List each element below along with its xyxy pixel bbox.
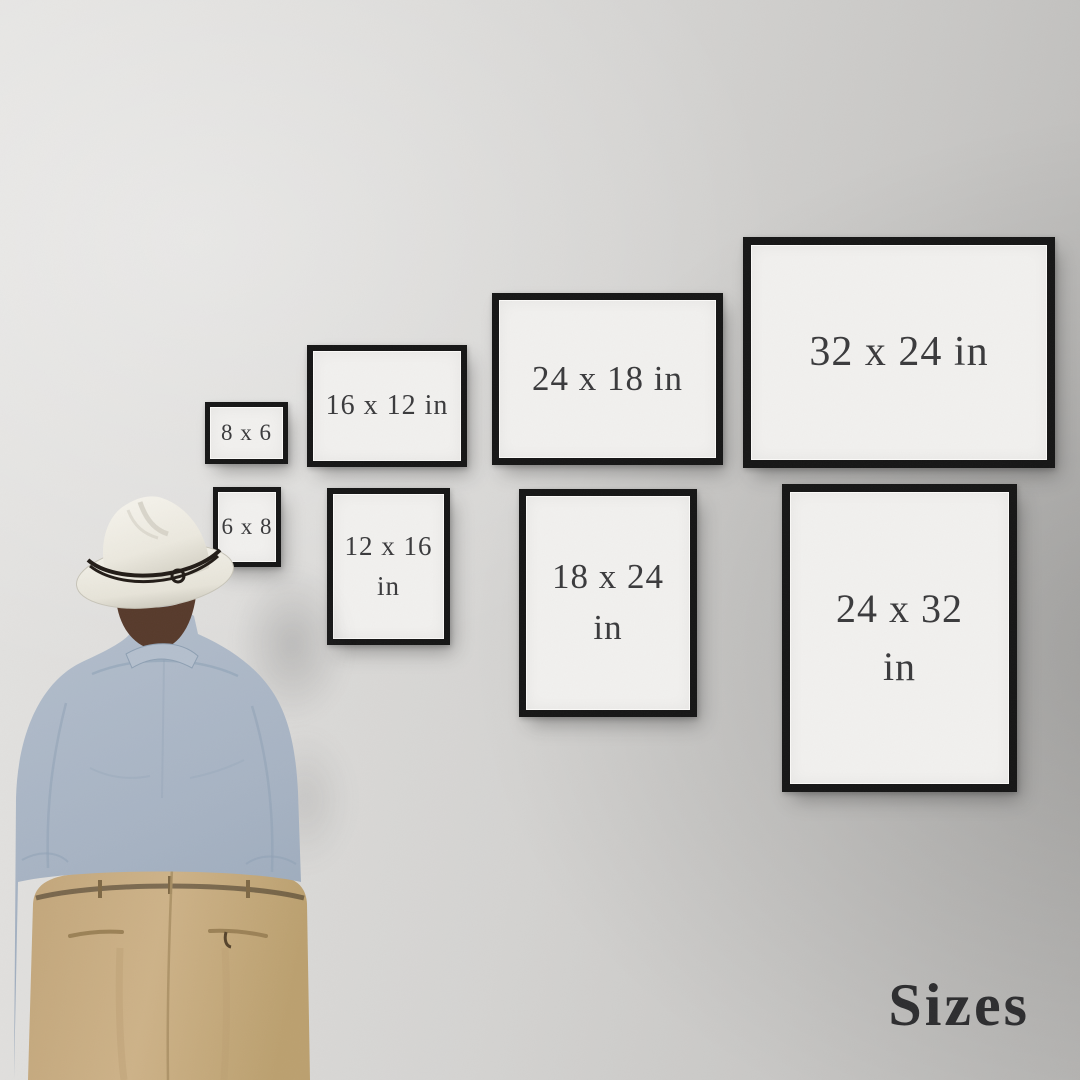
frame-32x24-label: 32 x 24 in bbox=[809, 322, 988, 383]
frame-18x24-label: 18 x 24in bbox=[552, 552, 664, 654]
frame-size-text: 8 x 6 bbox=[221, 416, 272, 449]
frame-12x16: 12 x 16in bbox=[327, 488, 450, 645]
frame-16x12-label: 16 x 12 in bbox=[326, 386, 449, 427]
frame-8x6-label: 8 x 6 bbox=[221, 416, 272, 449]
frame-24x18-label: 24 x 18 in bbox=[532, 354, 683, 405]
frame-size-text: 16 x 12 in bbox=[326, 386, 449, 427]
frame-16x12: 16 x 12 in bbox=[307, 345, 467, 467]
frame-8x6: 8 x 6 bbox=[205, 402, 288, 464]
frame-24x32-label: 24 x 32in bbox=[836, 580, 963, 696]
frame-size-text: 32 x 24 in bbox=[809, 322, 988, 383]
frame-24x18: 24 x 18 in bbox=[492, 293, 723, 465]
man-figure bbox=[0, 468, 340, 1080]
frame-18x24: 18 x 24in bbox=[519, 489, 697, 717]
frame-32x24: 32 x 24 in bbox=[743, 237, 1055, 468]
sizes-title: Sizes bbox=[888, 971, 1030, 1040]
frame-size-text: 24 x 18 in bbox=[532, 354, 683, 405]
trousers bbox=[28, 868, 310, 1080]
frame-size-text: 12 x 16 bbox=[345, 527, 433, 566]
frame-size-text: 24 x 32 bbox=[836, 580, 963, 638]
frame-24x32: 24 x 32in bbox=[782, 484, 1017, 792]
frame-12x16-label: 12 x 16in bbox=[345, 527, 433, 605]
frame-size-text: 18 x 24 bbox=[552, 552, 664, 603]
wall-scene: 8 x 6 16 x 12 in 24 x 18 in 32 x 24 in 6… bbox=[0, 0, 1080, 1080]
fedora-hat bbox=[73, 496, 237, 616]
